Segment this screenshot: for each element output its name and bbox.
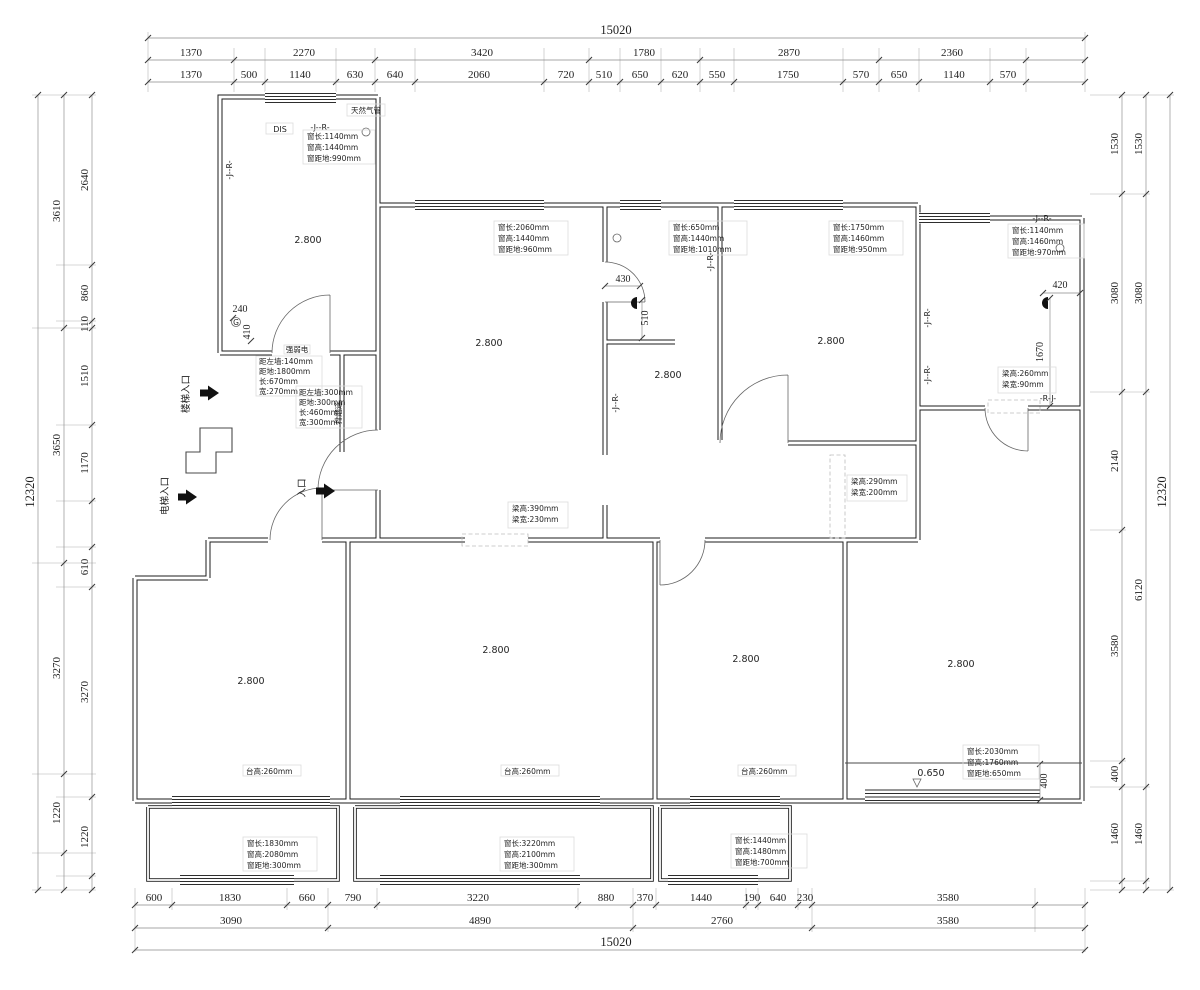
dim-label: 2360 bbox=[941, 47, 964, 59]
dimension-ticks bbox=[35, 35, 1173, 953]
dim-label: 650 bbox=[632, 69, 649, 81]
stair-entrance-arrow-icon bbox=[200, 386, 219, 401]
top-dimensions: 15020 1370 2270 3420 1780 2870 2360 1370… bbox=[180, 23, 1017, 81]
dim-label: 2870 bbox=[778, 47, 801, 59]
ceiling-height-label: 2.800 bbox=[475, 338, 502, 349]
dim-label: 1460 bbox=[1133, 823, 1145, 846]
dim-label: 6120 bbox=[1133, 579, 1145, 602]
elevator-entrance-arrow-icon bbox=[178, 490, 197, 505]
sill-height-label: 台高:260mm bbox=[504, 766, 550, 776]
dim-label: 430 bbox=[616, 274, 631, 285]
dim-label: 1140 bbox=[943, 69, 965, 81]
dim-label: 1670 bbox=[1035, 342, 1046, 362]
stair-entrance-label: 楼梯入口 bbox=[180, 375, 192, 413]
door-stop-symbol bbox=[1042, 297, 1048, 309]
level-label: 0.650 bbox=[917, 768, 944, 779]
dim-label: 630 bbox=[347, 69, 364, 81]
dim-label: 1750 bbox=[777, 69, 800, 81]
dim-label: 510 bbox=[596, 69, 613, 81]
stair-outline bbox=[186, 428, 232, 473]
dim-label: 3080 bbox=[1109, 282, 1121, 305]
extension-lines bbox=[32, 32, 1174, 952]
dim-label: 1170 bbox=[79, 452, 91, 474]
ceiling-height-label: 2.800 bbox=[654, 370, 681, 381]
ceiling-height-label: 2.800 bbox=[947, 659, 974, 670]
window-spec-line: 窗长:3220mm bbox=[504, 838, 555, 848]
dim-label: 880 bbox=[598, 892, 615, 904]
dim-label: 240 bbox=[233, 304, 248, 315]
dim-label: 15020 bbox=[600, 23, 631, 37]
window-spec-line: 窗长:2060mm bbox=[498, 222, 549, 232]
window-code-label: -J--R- bbox=[923, 308, 932, 327]
dim-label: 410 bbox=[242, 325, 253, 340]
beam-spec-line: 梁宽:230mm bbox=[512, 514, 558, 524]
dim-label: 860 bbox=[79, 284, 91, 301]
window-code-label: -J--R- bbox=[310, 123, 329, 132]
window-code-label: -J--R- bbox=[1032, 214, 1051, 223]
dim-label: 600 bbox=[146, 892, 163, 904]
door-stop-symbol bbox=[631, 297, 637, 309]
ceiling-height-label: 2.800 bbox=[237, 676, 264, 687]
dim-label: 640 bbox=[770, 892, 787, 904]
ceiling-height-label: 2.800 bbox=[294, 235, 321, 246]
dim-label: 1460 bbox=[1109, 823, 1121, 846]
elec-title: 强弱电 bbox=[286, 344, 309, 354]
shaft-spec-line: 宽:300mm bbox=[299, 417, 338, 427]
ceiling-height-label: 2.800 bbox=[817, 336, 844, 347]
shaft-label: 排烟道 bbox=[333, 401, 343, 424]
dim-label: 720 bbox=[558, 69, 575, 81]
beam-spec-line: 梁高:390mm bbox=[512, 503, 558, 513]
dim-label: 420 bbox=[1053, 280, 1068, 291]
right-dimensions: 1530 3080 2140 3580 400 1460 1530 3080 6… bbox=[1109, 133, 1169, 846]
dim-label: 2760 bbox=[711, 915, 734, 927]
entry-arrow-icon bbox=[316, 484, 335, 499]
beam-spec-line: 梁宽:200mm bbox=[851, 487, 897, 497]
window-code-label: -J--R- bbox=[923, 365, 932, 384]
dim-label: 3220 bbox=[467, 892, 490, 904]
ceiling-height-label: 2.800 bbox=[732, 654, 759, 665]
window-spec-line: 窗高:1760mm bbox=[967, 757, 1018, 767]
dim-label: 620 bbox=[672, 69, 689, 81]
dim-label: 12320 bbox=[1155, 476, 1169, 507]
dim-label: 370 bbox=[637, 892, 654, 904]
dim-label: 1440 bbox=[690, 892, 713, 904]
dim-label: 3270 bbox=[51, 657, 63, 680]
floorplan-canvas: 15020 1370 2270 3420 1780 2870 2360 1370… bbox=[0, 0, 1200, 990]
dim-label: 1530 bbox=[1109, 133, 1121, 156]
ceiling-height-label: 2.800 bbox=[482, 645, 509, 656]
dim-label: 1510 bbox=[79, 365, 91, 388]
dim-label: 640 bbox=[387, 69, 404, 81]
walls bbox=[135, 97, 1082, 801]
dim-label: 3580 bbox=[1109, 635, 1121, 658]
window-spec-line: 窗长:1750mm bbox=[833, 222, 884, 232]
window-spec-line: 窗高:1440mm bbox=[498, 233, 549, 243]
bottom-dimensions: 600 1830 660 790 3220 880 370 1440 190 6… bbox=[146, 892, 960, 949]
dim-label: 2640 bbox=[79, 169, 91, 192]
elec-spec-line: 宽:270mm bbox=[259, 386, 298, 396]
dim-label: 2270 bbox=[293, 47, 316, 59]
sill-height-label: 台高:260mm bbox=[741, 766, 787, 776]
window-spec-line: 窗距地:700mm bbox=[735, 857, 789, 867]
dim-label: 3080 bbox=[1133, 282, 1145, 305]
dim-label: 3270 bbox=[79, 681, 91, 704]
dim-label: 3580 bbox=[937, 892, 960, 904]
window-spec-line: 窗距地:950mm bbox=[833, 244, 887, 254]
shaft-spec-line: 长:460mm bbox=[299, 407, 338, 417]
dim-label: 2060 bbox=[468, 69, 491, 81]
window-spec-line: 窗距地:990mm bbox=[307, 153, 361, 163]
dim-label: 400 bbox=[1039, 774, 1050, 789]
window-code-label: -J--R- bbox=[706, 252, 715, 271]
window-spec-line: 窗长:1440mm bbox=[735, 835, 786, 845]
dim-label: 2140 bbox=[1109, 450, 1121, 473]
window-spec-line: 窗长:1830mm bbox=[247, 838, 298, 848]
dim-label: 230 bbox=[797, 892, 814, 904]
elevator-entrance-label: 电梯入口 bbox=[159, 477, 171, 515]
window-code-label: -J--R- bbox=[611, 393, 620, 412]
beam-spec-line: 梁高:260mm bbox=[1002, 368, 1048, 378]
dim-label: 3580 bbox=[937, 915, 960, 927]
window-spec-line: 窗距地:1010mm bbox=[673, 244, 732, 254]
dim-label: 1830 bbox=[219, 892, 242, 904]
door-arcs bbox=[270, 262, 1028, 585]
left-dimensions: 12320 3610 3650 3270 1220 2640 860 110 1… bbox=[23, 169, 91, 849]
dim-label: 1370 bbox=[180, 69, 203, 81]
gas-pipe-label: 天然气管 bbox=[351, 105, 381, 115]
elec-spec-line: 长:670mm bbox=[259, 376, 298, 386]
window-spec-line: 窗长:1140mm bbox=[1012, 225, 1063, 235]
dim-label: 3420 bbox=[471, 47, 494, 59]
dim-label: 1220 bbox=[79, 826, 91, 849]
gas-meter-letter: G bbox=[233, 318, 239, 327]
elec-spec-line: 距左墙:140mm bbox=[259, 356, 313, 366]
sill-height-label: 台高:260mm bbox=[246, 766, 292, 776]
dis-label: DIS bbox=[273, 125, 287, 134]
window-spec-line: 窗距地:960mm bbox=[498, 244, 552, 254]
dim-label: 510 bbox=[640, 311, 651, 326]
balconies bbox=[148, 807, 790, 880]
dim-label: 1530 bbox=[1133, 133, 1145, 156]
shaft-spec-line: 距左墙:300mm bbox=[299, 387, 353, 397]
dim-label: 660 bbox=[299, 892, 316, 904]
window-spec-line: 窗距地:970mm bbox=[1012, 247, 1066, 257]
dim-label: 550 bbox=[709, 69, 726, 81]
dim-label: 3610 bbox=[51, 200, 63, 223]
dim-label: 570 bbox=[853, 69, 870, 81]
dim-label: 500 bbox=[241, 69, 258, 81]
dim-label: 790 bbox=[345, 892, 362, 904]
beam-spec-line: 梁宽:90mm bbox=[1002, 379, 1044, 389]
dim-label: 190 bbox=[744, 892, 761, 904]
window-code-label: -R-J- bbox=[1040, 394, 1057, 403]
entry-label: 入口 bbox=[297, 478, 308, 497]
dim-label: 1780 bbox=[633, 47, 656, 59]
dim-label: 110 bbox=[79, 315, 91, 332]
beam-outlines bbox=[462, 400, 1040, 546]
window-spec-line: 窗高:2080mm bbox=[247, 849, 298, 859]
dim-label: 4890 bbox=[469, 915, 492, 927]
window-spec-line: 窗距地:300mm bbox=[504, 860, 558, 870]
dimension-lines bbox=[38, 38, 1170, 950]
floorplan-drawing: 15020 1370 2270 3420 1780 2870 2360 1370… bbox=[0, 0, 1200, 990]
dim-label: 400 bbox=[1109, 765, 1121, 782]
elec-spec-line: 距地:1800mm bbox=[259, 366, 310, 376]
window-spec-line: 窗长:1140mm bbox=[307, 131, 358, 141]
window-spec-line: 窗距地:650mm bbox=[967, 768, 1021, 778]
window-spec-line: 窗高:1460mm bbox=[833, 233, 884, 243]
window-spec-line: 窗高:1480mm bbox=[735, 846, 786, 856]
window-spec-line: 窗距地:300mm bbox=[247, 860, 301, 870]
window-spec-line: 窗高:1440mm bbox=[307, 142, 358, 152]
beam-spec-line: 梁高:290mm bbox=[851, 476, 897, 486]
dim-label: 570 bbox=[1000, 69, 1017, 81]
window-spec-line: 窗高:2100mm bbox=[504, 849, 555, 859]
window-spec-line: 窗高:1440mm bbox=[673, 233, 724, 243]
dim-label: 1220 bbox=[51, 802, 63, 825]
level-marker-icon bbox=[913, 779, 921, 787]
dim-label: 1370 bbox=[180, 47, 203, 59]
dim-label: 610 bbox=[79, 558, 91, 575]
dim-label: 3650 bbox=[51, 434, 63, 457]
dim-label: 12320 bbox=[23, 476, 37, 507]
window-code-label: -J--R- bbox=[225, 160, 234, 179]
dim-label: 15020 bbox=[600, 935, 631, 949]
window-spec-line: 窗高:1460mm bbox=[1012, 236, 1063, 246]
dim-label: 3090 bbox=[220, 915, 243, 927]
window-spec-line: 窗长:2030mm bbox=[967, 746, 1018, 756]
dim-label: 650 bbox=[891, 69, 908, 81]
window-spec-line: 窗长:650mm bbox=[673, 222, 719, 232]
dim-label: 1140 bbox=[289, 69, 311, 81]
